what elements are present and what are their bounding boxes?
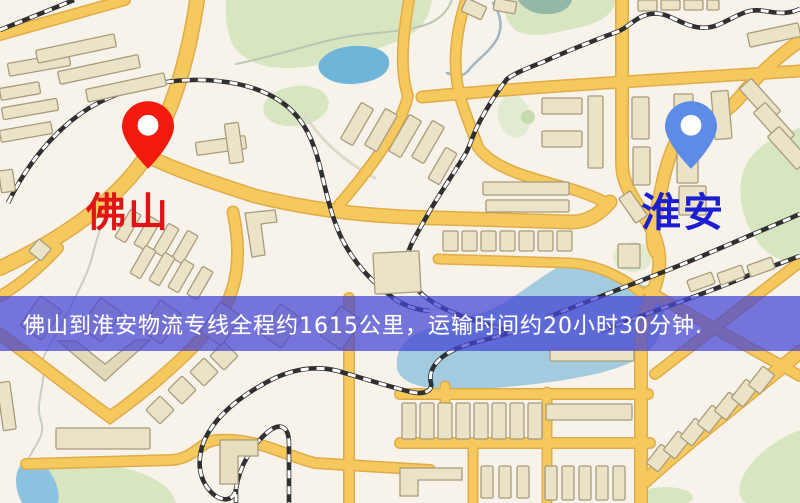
route-info-banner: 佛山到淮安物流专线全程约1615公里，运输时间约20小时30分钟. — [0, 296, 800, 351]
route-info-text: 佛山到淮安物流专线全程约1615公里，运输时间约20小时30分钟. — [0, 308, 703, 340]
destination-label: 淮安 — [641, 180, 725, 238]
map-viewport[interactable]: 佛山 淮安 佛山到淮安物流专线全程约1615公里，运输时间约20小时30分钟. — [0, 0, 800, 503]
origin-pin[interactable] — [122, 101, 174, 173]
destination-pin[interactable] — [665, 101, 717, 173]
origin-pin-icon — [122, 101, 174, 169]
origin-label: 佛山 — [86, 180, 170, 238]
basemap — [0, 0, 800, 503]
destination-pin-icon — [665, 101, 717, 169]
